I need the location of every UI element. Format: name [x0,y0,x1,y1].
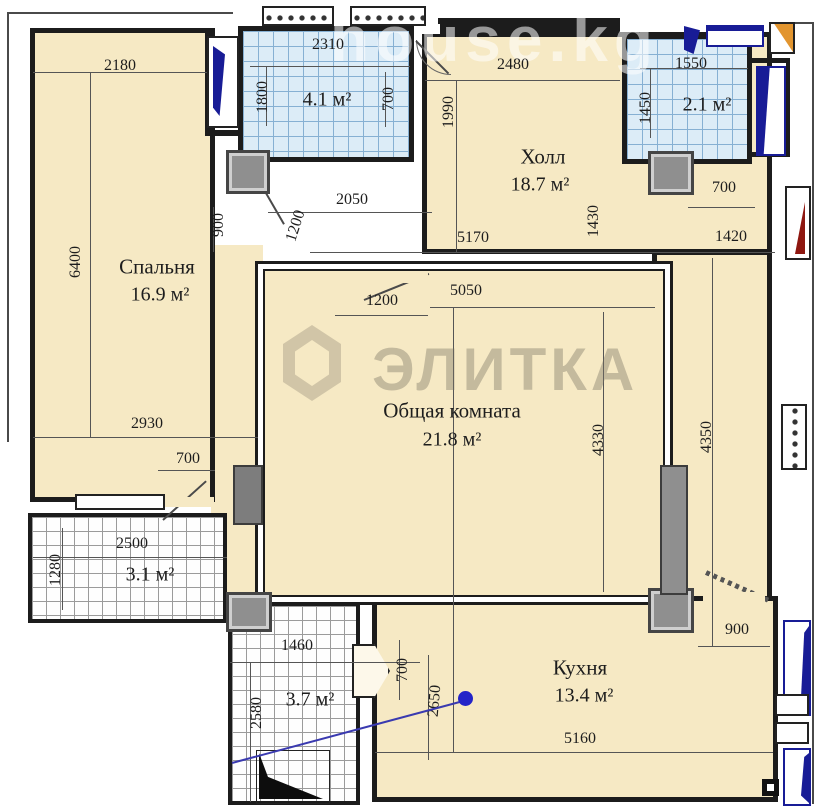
dim-line [698,646,770,647]
room-area-bathroom: 4.1 м² [303,89,352,112]
floor-plan: house.kg ЭЛИТКА Спальня 16.9 м² Холл 18.… [0,0,825,810]
window-symbol [783,748,811,806]
room-area-kitchen: 13.4 м² [555,685,614,708]
dim-line [425,80,620,81]
room-area-bedroom: 16.9 м² [131,284,190,307]
vent-icon [781,404,807,470]
corner-shelf-fill [771,24,793,52]
dim-line [250,662,251,802]
room-area-living: 21.8 м² [423,429,482,452]
window-symbol [706,25,764,47]
window-symbol [75,494,165,510]
column-small [762,779,779,796]
dim-line [90,72,91,437]
pointer-dot [458,691,473,706]
window-sill [775,694,809,716]
stairs-arrow-icon [259,753,323,799]
room-area-wc: 2.1 м² [683,94,732,117]
column-core [767,784,774,791]
radiator-niche [785,186,811,260]
vent-icon [262,6,334,26]
dim-line [456,80,457,252]
column [226,592,272,632]
dim-line [335,315,428,316]
dim-line [230,662,420,663]
window-fill [801,753,809,803]
dim-line [33,72,207,73]
dim-line [688,207,755,208]
room-area-loggia-small: 3.1 м² [126,564,175,587]
pillar [660,465,688,595]
wardrobe-niche [207,36,239,128]
dim-line [428,655,429,760]
watermark-brand: ЭЛИТКА [372,335,638,404]
outer-wall-segment [7,12,233,14]
living-door-opening [336,271,428,283]
wall-segment [786,58,790,157]
pillar [233,465,263,525]
window-sill [775,722,809,744]
wall-segment [752,58,790,63]
room-label-living: Общая комната [383,399,521,424]
watermark-logo-core [295,340,329,386]
dim-line [266,66,267,126]
column [226,150,270,194]
room-label-bedroom: Спальня [119,255,195,280]
room-area-loggia-big: 3.7 м² [286,689,335,712]
radiator-icon [795,202,805,254]
dim-line [650,68,651,138]
dim-line [310,252,775,253]
dim-line [430,307,655,308]
room-label-kitchen: Кухня [553,656,607,681]
room-area-hall: 18.7 м² [511,174,570,197]
dim-label: 2050 [336,191,368,209]
dim-line [33,437,258,438]
corner-shelf [769,22,795,54]
dim-line [268,212,432,213]
door-symbol [756,66,786,156]
door-symbol-icon [213,46,225,116]
room-label-hall: Холл [520,145,565,170]
wall-segment [205,130,243,136]
dim-line [712,258,713,646]
dim-label: 1200 [282,208,309,244]
stairs-arrow-box [256,750,330,804]
dim-line [375,752,773,753]
door-leaf-fill [758,68,784,154]
dim-line [213,207,214,252]
dim-line [399,640,400,700]
watermark-top: house.kg [330,2,659,76]
dim-line [62,528,63,610]
bedroom-loggia-opening [164,497,214,507]
column [648,151,694,195]
outer-wall-segment [812,24,814,804]
outer-wall-segment [7,12,9,442]
dim-line [385,72,386,127]
dim-line [158,470,215,471]
